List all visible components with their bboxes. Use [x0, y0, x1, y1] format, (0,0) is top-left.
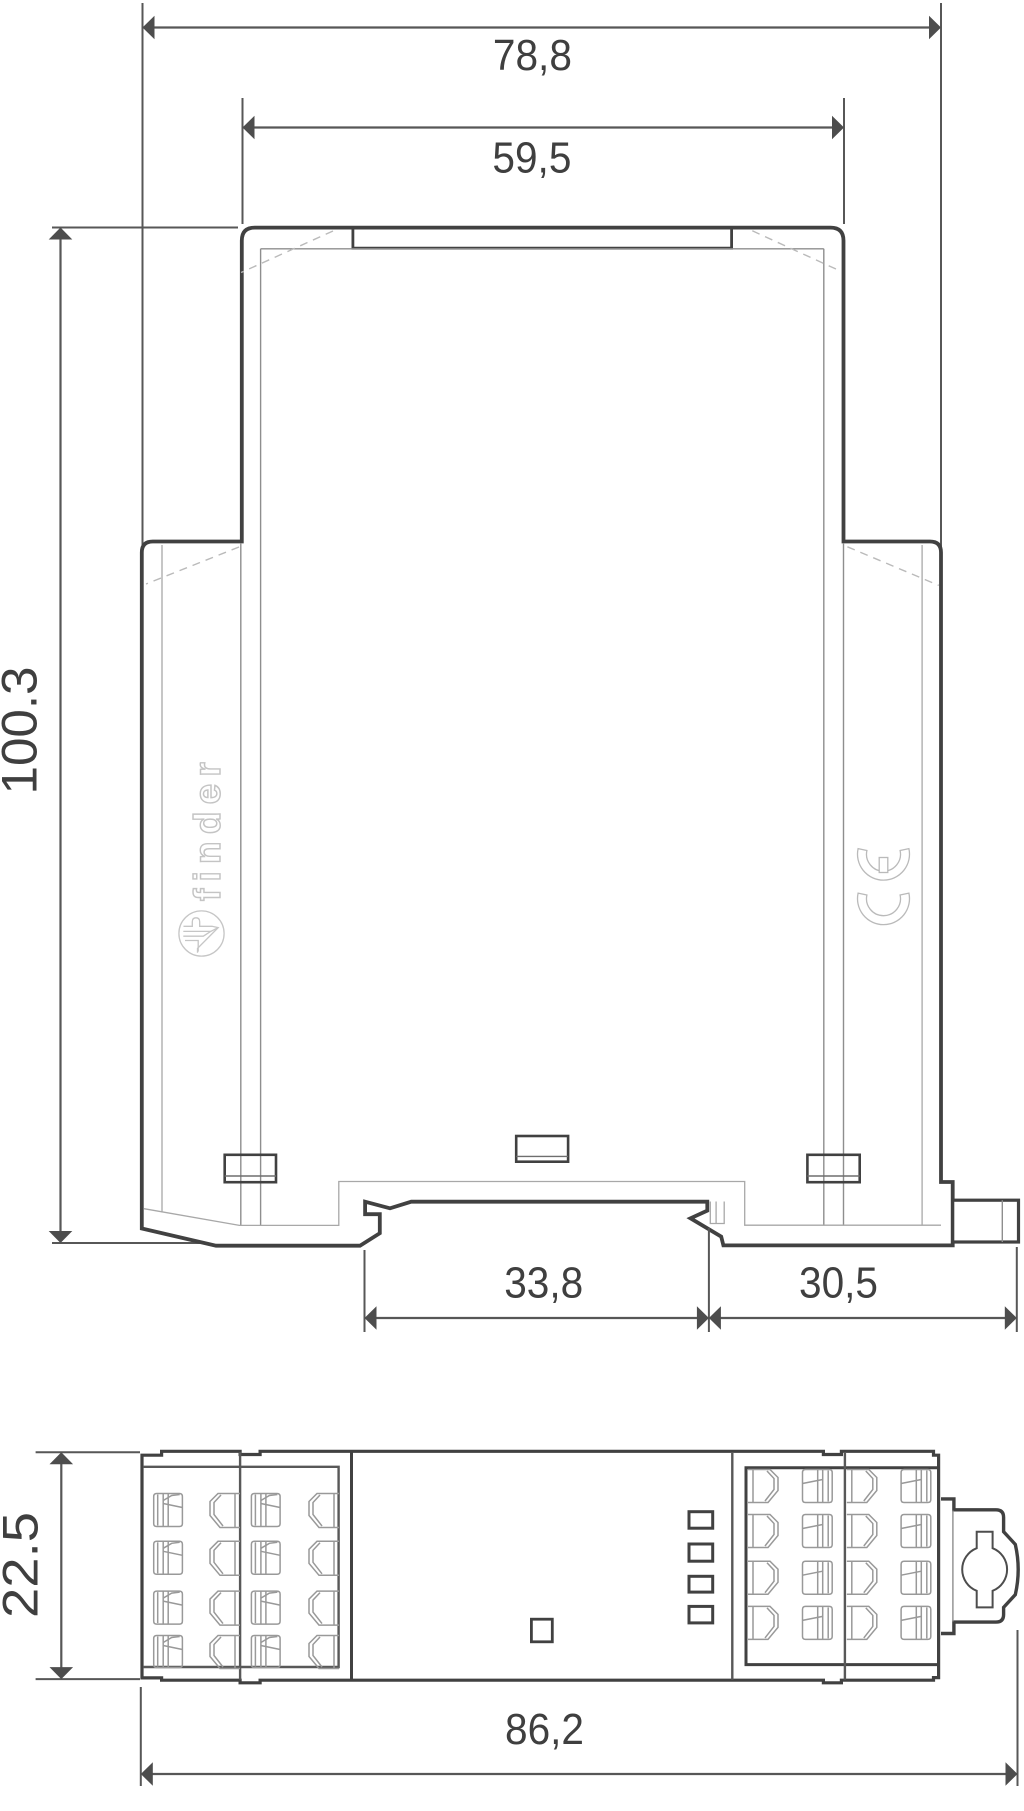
- svg-text:78,8: 78,8: [493, 31, 572, 80]
- svg-text:30,5: 30,5: [799, 1259, 878, 1308]
- svg-text:86,2: 86,2: [505, 1705, 584, 1754]
- svg-text:finder: finder: [187, 755, 228, 901]
- svg-text:22.5: 22.5: [0, 1512, 49, 1618]
- svg-text:33,8: 33,8: [504, 1259, 583, 1308]
- svg-text:100.3: 100.3: [0, 667, 48, 795]
- svg-text:59,5: 59,5: [492, 134, 571, 183]
